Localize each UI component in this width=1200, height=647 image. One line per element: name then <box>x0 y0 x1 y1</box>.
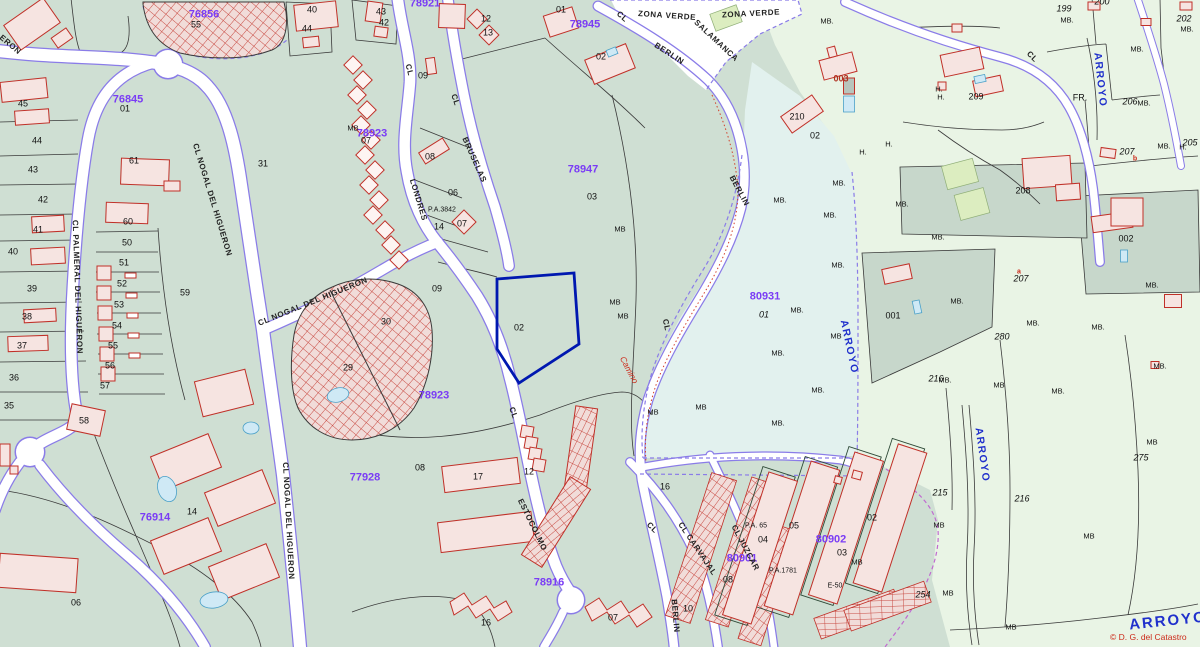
zone-label: 78923 <box>419 391 450 402</box>
parcel-number: 43 <box>28 166 38 175</box>
parcel-number: 07 <box>457 220 467 229</box>
parcel-number: 44 <box>302 25 312 34</box>
street-label: CL <box>615 10 629 24</box>
parcel-number: 52 <box>117 280 127 289</box>
parcel-number: 14 <box>434 223 444 232</box>
mb-label: MB. <box>823 211 836 219</box>
parcel-number: 08 <box>723 576 733 585</box>
parcel-number: 45 <box>18 100 28 109</box>
parcel-number: 03 <box>587 193 597 202</box>
mb-label: MB. <box>938 376 951 384</box>
parcel-number: 208 <box>1015 187 1030 196</box>
parcel-number: H. <box>937 93 945 101</box>
mb-label: MB <box>1146 438 1157 446</box>
parcel-number: 12 <box>481 15 491 24</box>
parcel-number: 02 <box>810 132 820 141</box>
mb-label: MB. <box>895 200 908 208</box>
parcel-number: H. <box>859 148 867 156</box>
zone-label: 80931 <box>750 292 781 303</box>
street-label: LONDRES <box>408 178 428 222</box>
parcel-number: 07 <box>361 137 371 146</box>
parcel-number: 001 <box>885 312 900 321</box>
mb-label: MB <box>695 403 706 411</box>
red-annotation: b <box>1133 156 1137 163</box>
street-label: CL <box>661 318 671 331</box>
parcel-number: 207 <box>1013 275 1028 284</box>
parcel-number: 44 <box>32 137 42 146</box>
street-label: CL CARVAJAL <box>676 521 717 577</box>
red-parcel-label: 003 <box>833 75 848 84</box>
street-label: SALAMANCA <box>692 19 739 64</box>
parcel-number: 01 <box>759 311 769 320</box>
parcel-number: 01 <box>556 6 566 15</box>
parcel-number: H. <box>885 140 893 148</box>
street-label: BERLIN <box>728 174 751 207</box>
parcel-number: 30 <box>381 318 391 327</box>
street-label: BERLIN <box>670 599 681 633</box>
parcel-number: 37 <box>17 342 27 351</box>
parcel-number: 06 <box>448 189 458 198</box>
parcel-number: 04 <box>758 536 768 545</box>
parcel-ref-label: E-50 <box>828 583 843 590</box>
mb-label: MB. <box>1145 281 1158 289</box>
mb-label: MB <box>1083 532 1094 540</box>
street-label: BRUSELAS <box>460 136 487 184</box>
parcel-number: 56 <box>105 362 115 371</box>
cadastral-map-viewport[interactable]: 7685676845789217894578947789237892377928… <box>0 0 1200 647</box>
parcel-number: 206 <box>1122 98 1137 107</box>
mb-label: MB <box>347 124 358 132</box>
parcel-number: 42 <box>379 19 389 28</box>
zone-label: 80902 <box>816 535 847 546</box>
parcel-number: 35 <box>4 402 14 411</box>
parcel-number: 59 <box>180 289 190 298</box>
mb-label: MB <box>933 521 944 529</box>
parcel-number: 16 <box>660 483 670 492</box>
parcel-number: 40 <box>307 6 317 15</box>
mb-label: MB <box>617 312 628 320</box>
parcel-number: 16 <box>481 619 491 628</box>
mb-label: MB. <box>832 179 845 187</box>
mb-label: MB. <box>811 386 824 394</box>
mb-label: MB. <box>1091 323 1104 331</box>
arroyo-label: ARROYO <box>1129 609 1200 632</box>
parcel-number: 09 <box>432 285 442 294</box>
parcel-number: 42 <box>38 196 48 205</box>
mb-label: MB <box>830 332 841 340</box>
mb-label: MB <box>647 408 658 416</box>
parcel-number: 58 <box>79 417 89 426</box>
parcel-number: 01 <box>120 105 130 114</box>
mb-label: MB <box>942 589 953 597</box>
parcel-number: 209 <box>968 93 983 102</box>
parcel-number: 03 <box>837 549 847 558</box>
parcel-number: 09 <box>418 72 428 81</box>
parcel-number: 39 <box>27 285 37 294</box>
street-label: CL <box>507 406 519 420</box>
zone-label: 78916 <box>534 578 565 589</box>
parcel-number: 17 <box>473 473 483 482</box>
mb-label: MB. <box>790 306 803 314</box>
mb-label: MB. <box>1153 362 1166 370</box>
mb-label: MB <box>609 298 620 306</box>
parcel-number: 61 <box>129 157 139 166</box>
street-label: CL PALMERAL DEL HIGUERON <box>71 220 84 354</box>
mb-label: MB <box>851 558 862 566</box>
parcel-number: 55 <box>191 21 201 30</box>
parcel-ref-label: P.A. 65 <box>745 523 767 530</box>
red-annotation: a <box>1017 269 1021 276</box>
parcel-number: 50 <box>122 239 132 248</box>
parcel-ref-label: P.A.3842 <box>428 207 456 214</box>
parcel-number: 02 <box>867 514 877 523</box>
mb-label: MB <box>993 381 1004 389</box>
mb-label: MB <box>1005 623 1016 631</box>
zone-label: 78947 <box>568 165 599 176</box>
parcel-number: 57 <box>100 382 110 391</box>
parcel-number: 254 <box>915 591 930 600</box>
mb-label: MB. <box>820 17 833 25</box>
parcel-number: 40 <box>8 248 18 257</box>
parcel-number: 280 <box>994 333 1009 342</box>
mb-label: MB. <box>771 419 784 427</box>
parcel-number: 216 <box>1014 495 1029 504</box>
mb-label: MB. <box>773 196 786 204</box>
mb-label: MB. <box>831 261 844 269</box>
arroyo-label: ARROYO <box>838 319 860 375</box>
zone-label: 78945 <box>570 20 601 31</box>
parcel-number: 215 <box>932 489 947 498</box>
mb-label: MB. <box>1051 387 1064 395</box>
parcel-number: 275 <box>1133 454 1148 463</box>
street-label: CL NOGAL DEL HIGUERON <box>257 276 369 327</box>
parcel-number: 54 <box>112 322 122 331</box>
parcel-number: FR. <box>1073 94 1088 103</box>
street-label: ESTOCOLMO <box>516 498 548 553</box>
parcel-number: 31 <box>258 160 268 169</box>
mb-label: MB. <box>950 297 963 305</box>
parcel-number: 02 <box>596 53 606 62</box>
parcel-number: 41 <box>33 226 43 235</box>
parcel-number: 36 <box>9 374 19 383</box>
parcel-number: 13 <box>483 29 493 38</box>
copyright-notice: © D. G. del Catastro <box>1110 632 1187 642</box>
parcel-number: 29 <box>343 364 353 373</box>
street-label: CL NOGAL DEL HIGUERON <box>191 143 233 258</box>
street-label: CL <box>404 63 415 77</box>
street-label: CL NOGAL DEL HIGUERON <box>281 462 295 580</box>
street-label: ERON <box>0 34 22 57</box>
mb-label: MB. <box>1180 25 1193 33</box>
zone-label: 77928 <box>350 473 381 484</box>
parcel-number: 60 <box>123 218 133 227</box>
mb-label: MB. <box>1157 142 1170 150</box>
parcel-number: 14 <box>187 508 197 517</box>
street-label: BERLIN <box>653 42 685 67</box>
mb-label: MB. <box>1026 319 1039 327</box>
parcel-number: 12 <box>524 468 534 477</box>
mb-label: MB. <box>1137 99 1150 107</box>
map-labels-layer: 7685676845789217894578947789237892377928… <box>0 0 1200 647</box>
mb-label: MB. <box>1060 16 1073 24</box>
parcel-number: 38 <box>22 313 32 322</box>
parcel-number: 202 <box>1176 15 1191 24</box>
mb-label: MB. <box>771 349 784 357</box>
parcel-number: 07 <box>608 614 618 623</box>
mb-label: MB <box>614 225 625 233</box>
zone-label: 76914 <box>140 513 171 524</box>
arroyo-label: ARROYO <box>1092 52 1108 108</box>
camino-label: Camino <box>618 355 639 385</box>
street-label: CL <box>1025 50 1039 64</box>
street-label: ZONA VERDE <box>638 10 697 22</box>
mb-label: MB. <box>1130 45 1143 53</box>
zone-label: 78921 <box>410 0 441 10</box>
parcel-number: 05 <box>789 522 799 531</box>
parcel-number: 06 <box>71 599 81 608</box>
street-label: CL <box>645 521 659 535</box>
parcel-number: 51 <box>119 259 129 268</box>
parcel-number: 08 <box>425 153 435 162</box>
parcel-number: 02 <box>514 324 524 333</box>
parcel-number: 08 <box>415 464 425 473</box>
mb-label: MB. <box>931 233 944 241</box>
parcel-number: 002 <box>1118 235 1133 244</box>
parcel-number: 210 <box>789 113 804 122</box>
street-label: ZONA VERDE <box>722 8 780 19</box>
parcel-number: H. <box>1179 143 1187 151</box>
street-label: CL <box>449 93 460 107</box>
parcel-number: 10 <box>683 605 693 614</box>
arroyo-label: ARROYO <box>973 427 991 483</box>
parcel-number: 199 <box>1056 5 1071 14</box>
parcel-number: 55 <box>108 342 118 351</box>
parcel-number: 43 <box>376 8 386 17</box>
parcel-ref-label: P.A.1781 <box>769 568 797 575</box>
parcel-number: 200 <box>1094 0 1109 7</box>
parcel-number: 53 <box>114 301 124 310</box>
street-label: CL JUZCAR <box>730 524 761 572</box>
